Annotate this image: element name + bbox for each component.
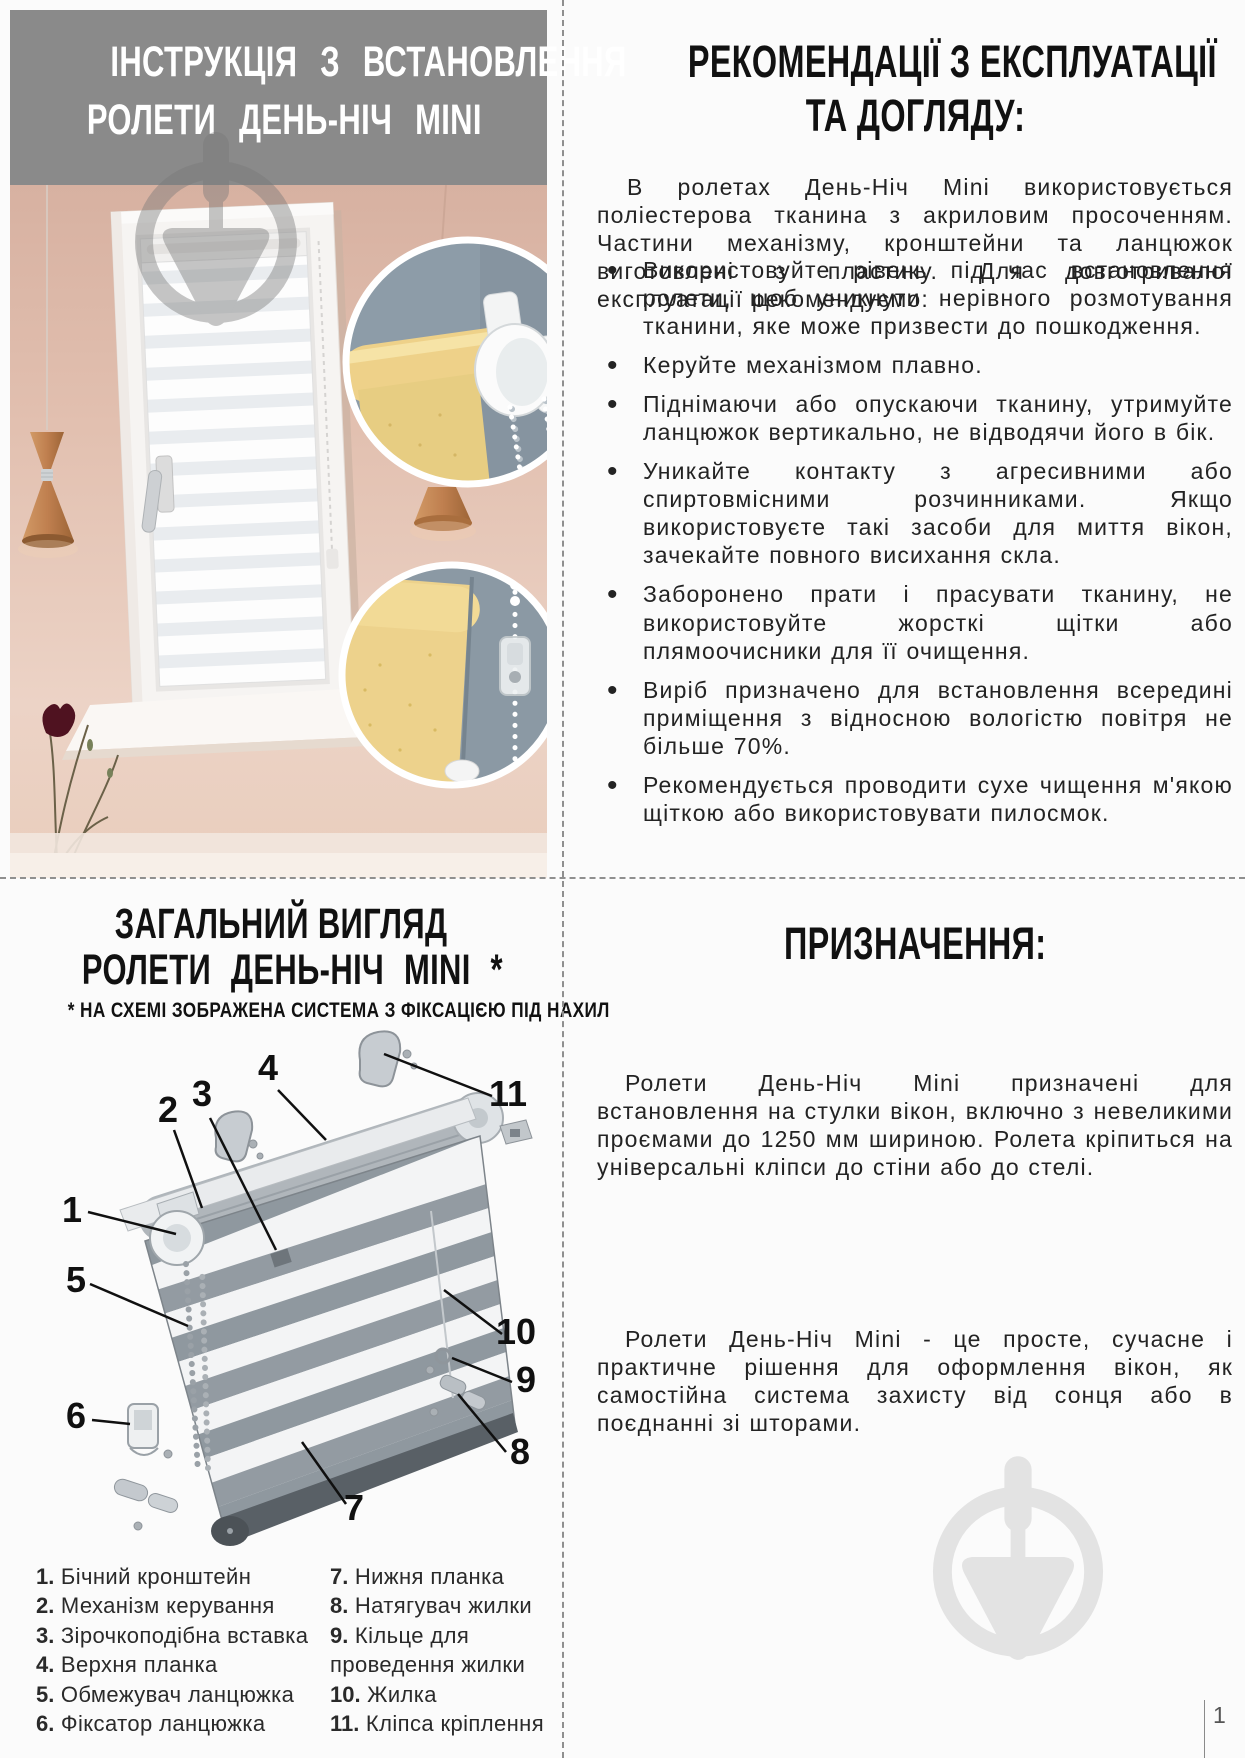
legend-item-number: 7. — [330, 1564, 348, 1589]
legend-item-label: Нижня планка — [348, 1564, 504, 1589]
bullet-item: Піднімаючи або опускаючи тканину, утриму… — [597, 390, 1233, 446]
recommendations-bullet-list: Використовуйте рівень під час встановлен… — [597, 256, 1233, 838]
legend-item: 7. Нижня планка — [330, 1562, 562, 1591]
legend-item-number: 8. — [330, 1593, 348, 1618]
bullet-item: Рекомендується проводити сухе чищення м'… — [597, 771, 1233, 827]
install-header-line1: ІНСТРУКЦІЯ З ВСТАНОВЛЕННЯ — [10, 38, 547, 87]
legend-item-label: Бічний кронштейн — [54, 1564, 251, 1589]
legend-right-column: 7. Нижня планка8. Натягувач жилки9. Кіль… — [330, 1562, 562, 1739]
legend-item-number: 10. — [330, 1682, 361, 1707]
bullet-item: Уникайте контакту з агресивними або спир… — [597, 457, 1233, 569]
top-clip-left — [215, 1111, 263, 1161]
legend-item: 8. Натягувач жилки — [330, 1591, 562, 1620]
legend-item-number: 6. — [36, 1711, 54, 1736]
legend-item: 4. Верхня планка — [36, 1650, 316, 1679]
diagram-callout-label: 10 — [496, 1311, 536, 1352]
recommendations-title-line1: РЕКОМЕНДАЦІЇ З ЕКСПЛУАТАЦІЇ — [585, 36, 1245, 88]
legend-item-number: 4. — [36, 1652, 54, 1677]
legend-item-label: Жилка — [361, 1682, 437, 1707]
brand-watermark-icon — [913, 1452, 1123, 1662]
diagram-callout-label: 1 — [62, 1189, 82, 1230]
diagram-callout-label: 3 — [192, 1073, 212, 1114]
legend-item-number: 5. — [36, 1682, 54, 1707]
overview-note: * НА СХЕМІ ЗОБРАЖЕНА СИСТЕМА З ФІКСАЦІЄЮ… — [0, 998, 562, 1023]
legend-item-number: 3. — [36, 1623, 54, 1648]
bullet-item: Використовуйте рівень під час встановлен… — [597, 256, 1233, 340]
legend-item-number: 1. — [36, 1564, 54, 1589]
legend-left-column: 1. Бічний кронштейн2. Механізм керування… — [36, 1562, 316, 1739]
diagram-callout-label: 4 — [258, 1047, 278, 1088]
legend-item-label: Верхня планка — [54, 1652, 217, 1677]
recommendations-title-line2: ТА ДОГЛЯДУ: — [585, 90, 1245, 142]
diagram-callout-label: 7 — [344, 1487, 364, 1528]
vertical-fold-divider — [562, 0, 564, 1758]
legend-item: 3. Зірочкоподібна вставка — [36, 1621, 316, 1650]
top-clip-right — [359, 1031, 417, 1086]
page-number-rule — [1204, 1700, 1205, 1758]
legend-item-label: Зірочкоподібна вставка — [54, 1623, 308, 1648]
legend-item-label: Натягувач жилки — [348, 1593, 532, 1618]
legend-item-number: 11. — [330, 1711, 359, 1736]
legend-item: 9. Кільце для проведення жилки — [330, 1621, 562, 1680]
purpose-title: ПРИЗНАЧЕННЯ: — [585, 918, 1245, 970]
legend-item-label: Кліпса кріплення — [359, 1711, 544, 1736]
bullet-item: Заборонено прати і прасувати тканину, не… — [597, 580, 1233, 664]
purpose-paragraph-2: Ролети День-Ніч Mini - це просте, сучасн… — [597, 1325, 1233, 1437]
legend-item: 5. Обмежувач ланцюжка — [36, 1680, 316, 1709]
blind-diagram-svg: 1 2 3 4 5 6 7 8 9 10 11 — [10, 1026, 547, 1558]
legend-item: 2. Механізм керування — [36, 1591, 316, 1620]
legend-item-label: Обмежувач ланцюжка — [54, 1682, 294, 1707]
legend-item: 11. Кліпса кріплення — [330, 1709, 562, 1738]
overview-title-line2: РОЛЕТИ ДЕНЬ-НІЧ MINI * — [0, 946, 562, 995]
legend-item: 6. Фіксатор ланцюжка — [36, 1709, 316, 1738]
legend-item-number: 9. — [330, 1623, 348, 1648]
legend-item-number: 2. — [36, 1593, 54, 1618]
blind-diagram: 1 2 3 4 5 6 7 8 9 10 11 — [10, 1026, 547, 1558]
diagram-callout-label: 9 — [516, 1359, 536, 1400]
legend-item-label: Кільце для проведення жилки — [330, 1623, 525, 1677]
diagram-callout-label: 5 — [66, 1259, 86, 1300]
legend-item: 10. Жилка — [330, 1680, 562, 1709]
diagram-callout-label: 11 — [489, 1073, 527, 1114]
purpose-paragraph-1: Ролети День-Ніч Mini призначені для вста… — [597, 1069, 1233, 1181]
diagram-callout-label: 8 — [510, 1431, 530, 1472]
bullet-item: Виріб призначено для встановлення всеред… — [597, 676, 1233, 760]
instruction-leaflet-page: ІНСТРУКЦІЯ З ВСТАНОВЛЕННЯ РОЛЕТИ ДЕНЬ-НІ… — [0, 0, 1245, 1758]
page-number: 1 — [1213, 1702, 1226, 1729]
photo-watermark-icon — [116, 128, 316, 328]
diagram-callout-label: 2 — [158, 1089, 178, 1130]
bullet-item: Керуйте механізмом плавно. — [597, 351, 1233, 379]
legend-item-label: Механізм керування — [54, 1593, 274, 1618]
diagram-callout-label: 6 — [66, 1395, 86, 1436]
overview-title-line1: ЗАГАЛЬНИЙ ВИГЛЯД — [0, 900, 562, 949]
legend-item: 1. Бічний кронштейн — [36, 1562, 316, 1591]
horizontal-fold-divider — [0, 877, 1245, 879]
legend-item-label: Фіксатор ланцюжка — [54, 1711, 265, 1736]
